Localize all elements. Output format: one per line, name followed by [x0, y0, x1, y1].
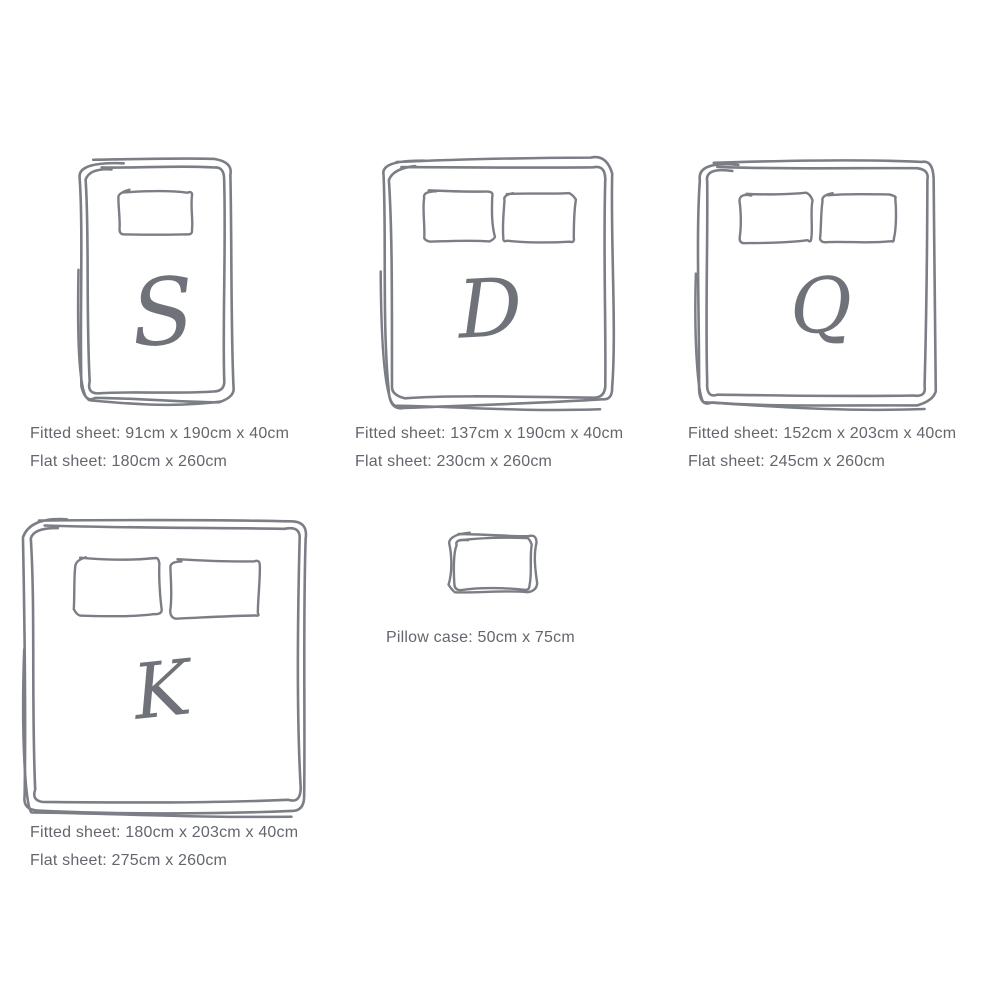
single-fitted-sheet-text: Fitted sheet: 91cm x 190cm x 40cm — [30, 420, 289, 448]
king-size-caption: Fitted sheet: 180cm x 203cm x 40cm Flat … — [30, 819, 298, 875]
king-letter-label: K — [127, 642, 199, 737]
single-letter-label: S — [128, 257, 198, 368]
single-size-caption: Fitted sheet: 91cm x 190cm x 40cm Flat s… — [30, 420, 289, 476]
pillow-case-caption: Pillow case: 50cm x 75cm — [386, 624, 575, 652]
bedding-size-guide-diagram: S D Q K Fitted sheet: 91cm x 190cm x 40c… — [0, 0, 1000, 1000]
queen-bed-sketch-icon: Q — [693, 158, 940, 410]
king-bed-sketch-icon: K — [20, 516, 312, 816]
single-flat-sheet-text: Flat sheet: 180cm x 260cm — [30, 448, 289, 476]
single-bed-sketch-icon: S — [75, 156, 237, 406]
pillow-case-text: Pillow case: 50cm x 75cm — [386, 624, 575, 652]
king-fitted-sheet-text: Fitted sheet: 180cm x 203cm x 40cm — [30, 819, 298, 847]
queen-flat-sheet-text: Flat sheet: 245cm x 260cm — [688, 448, 956, 476]
double-flat-sheet-text: Flat sheet: 230cm x 260cm — [355, 448, 623, 476]
king-flat-sheet-text: Flat sheet: 275cm x 260cm — [30, 847, 298, 875]
double-fitted-sheet-text: Fitted sheet: 137cm x 190cm x 40cm — [355, 420, 623, 448]
double-letter-label: D — [454, 260, 525, 356]
queen-letter-label: Q — [788, 259, 855, 351]
double-size-caption: Fitted sheet: 137cm x 190cm x 40cm Flat … — [355, 420, 623, 476]
pillow-case-sketch-icon — [443, 528, 543, 600]
queen-size-caption: Fitted sheet: 152cm x 203cm x 40cm Flat … — [688, 420, 956, 476]
queen-fitted-sheet-text: Fitted sheet: 152cm x 203cm x 40cm — [688, 420, 956, 448]
double-bed-sketch-icon: D — [378, 156, 618, 410]
